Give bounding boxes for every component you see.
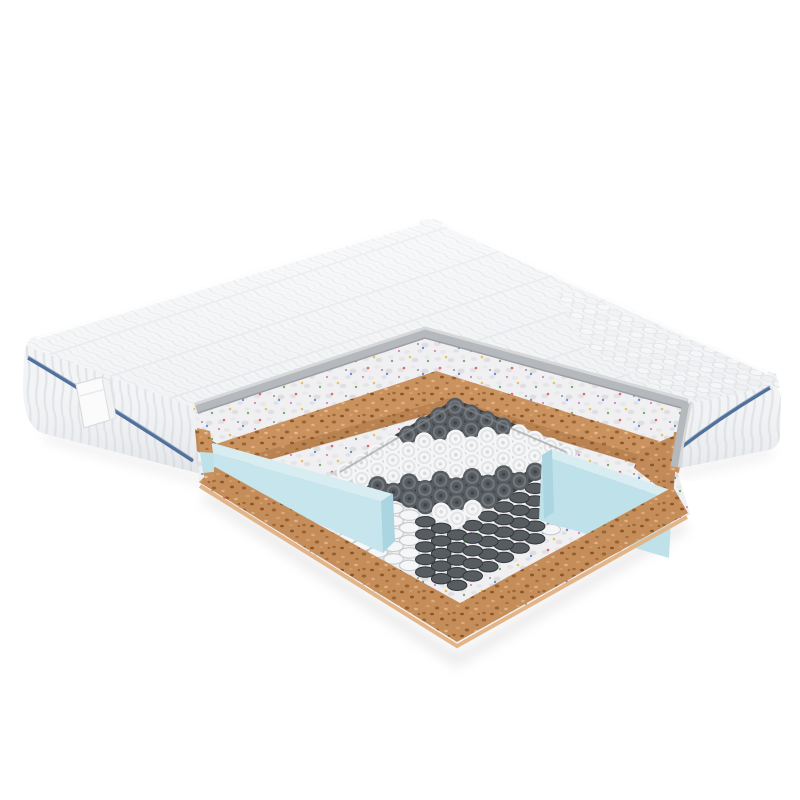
- spring-top-center: [375, 452, 379, 456]
- spring-stack-coil: [494, 502, 514, 512]
- spring-top-center: [423, 472, 427, 476]
- spring-stack-coil: [463, 571, 483, 581]
- spring-top-center: [376, 484, 380, 488]
- spring-top-center: [487, 498, 491, 502]
- care-label-tag: [76, 377, 116, 428]
- spring-top-center: [469, 428, 473, 432]
- spring-stack-coil: [447, 580, 467, 590]
- spring-top-center: [518, 479, 522, 483]
- spring-top-center: [455, 501, 459, 505]
- spring-stack-coil: [463, 520, 483, 530]
- spring-top-center: [439, 478, 443, 482]
- spring-top-center: [438, 430, 442, 434]
- spring-top-center: [424, 503, 428, 507]
- product-image-stage: [0, 0, 800, 800]
- spring-stack-coil: [463, 533, 483, 543]
- spring-top-center: [392, 490, 396, 494]
- spring-top-center: [391, 458, 395, 462]
- spring-top-center: [438, 446, 442, 450]
- spring-top-center: [406, 433, 410, 437]
- spring-top-center: [407, 449, 411, 453]
- mattress-cutaway-render: [0, 0, 800, 800]
- spring-top-center: [471, 491, 475, 495]
- spring-top-center: [360, 461, 364, 465]
- spring-top-center: [423, 487, 427, 491]
- spring-top-center: [517, 463, 521, 467]
- spring-stack-coil: [463, 558, 483, 568]
- spring-stack-coil: [400, 510, 420, 520]
- spring-top-center: [407, 465, 411, 469]
- spring-top-center: [439, 510, 443, 514]
- spring-top-center: [486, 466, 490, 470]
- spring-top-center: [455, 485, 459, 489]
- spring-top-center: [376, 468, 380, 472]
- spring-top-center: [470, 460, 474, 464]
- spring-top-center: [486, 482, 490, 486]
- spring-stack-coil: [463, 546, 483, 556]
- spring-top-center: [391, 442, 395, 446]
- spring-top-center: [502, 489, 506, 493]
- spring-top-center: [439, 462, 443, 466]
- spring-top-center: [454, 421, 458, 425]
- spring-top-center: [502, 457, 506, 461]
- spring-top-center: [360, 477, 364, 481]
- spring-top-center: [502, 473, 506, 477]
- spring-top-center: [391, 474, 395, 478]
- spring-top-center: [455, 517, 459, 521]
- spring-top-center: [471, 507, 475, 511]
- spring-top-center: [533, 470, 537, 474]
- spring-top-center: [454, 453, 458, 457]
- foam-rail-right-end-face: [542, 449, 554, 519]
- spring-top-center: [486, 450, 490, 454]
- spring-stack-coil: [416, 517, 436, 527]
- spring-top-center: [407, 481, 411, 485]
- spring-top-center: [454, 437, 458, 441]
- spring-top-center: [533, 454, 537, 458]
- spring-stack-coil: [510, 493, 530, 503]
- spring-top-center: [344, 470, 348, 474]
- spring-stack-coil: [479, 511, 499, 521]
- spring-stack-coil: [431, 523, 451, 533]
- spring-top-center: [485, 434, 489, 438]
- spring-top-center: [454, 469, 458, 473]
- spring-top-center: [470, 475, 474, 479]
- spring-top-center: [501, 441, 505, 445]
- spring-top-center: [439, 494, 443, 498]
- spring-top-center: [423, 456, 427, 460]
- spring-top-center: [517, 448, 521, 452]
- spring-top-center: [422, 440, 426, 444]
- spring-top-center: [408, 497, 412, 501]
- spring-top-center: [470, 444, 474, 448]
